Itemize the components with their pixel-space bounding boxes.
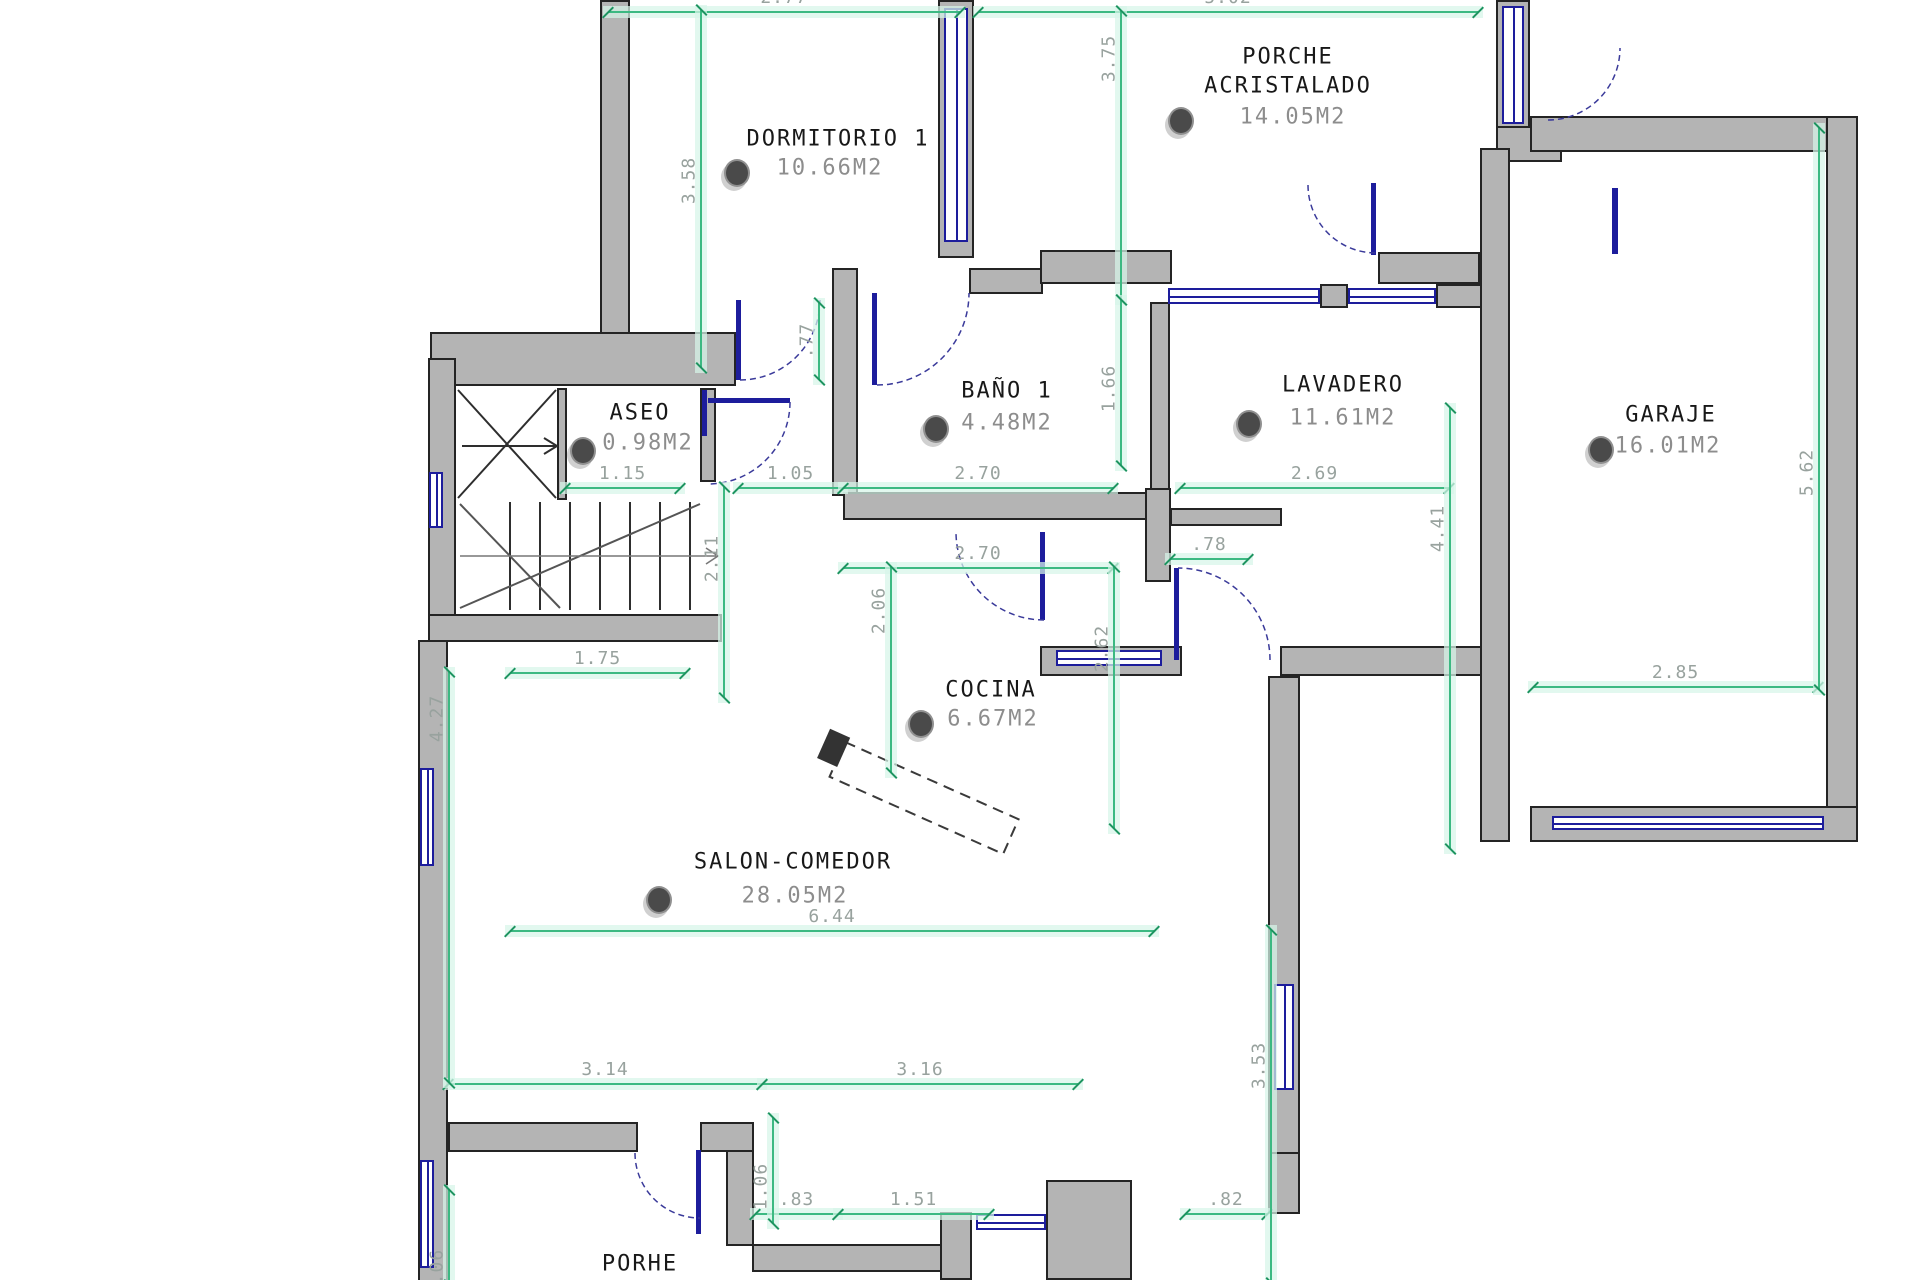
door-leaf [702,390,707,436]
wall-segment [940,1212,972,1280]
dimension-label: 3.58 [679,157,700,204]
wall-segment [600,0,630,334]
dimension-label: 1.75 [574,648,621,669]
light-point-marker [570,437,596,465]
room-label-porhe: PORHE [602,1252,678,1277]
wall-segment [1378,252,1480,284]
dimension-cocina-height-2: 2.62 [1113,567,1115,829]
dimension-label: 2.85 [1652,662,1699,683]
wall-segment [1530,116,1858,152]
dimension-pass-width: .78 [1170,558,1248,560]
dimension-salon-top-width: 1.75 [510,672,685,674]
dimension-label: 1.06 [427,1249,448,1280]
window [1552,816,1824,830]
dimension-hall-height: 2.11 [723,487,725,698]
dimension-label: .78 [1191,534,1227,555]
dimension-label: .77 [797,323,818,359]
window [1348,288,1436,304]
wall-segment [1826,116,1858,842]
door-leaf [708,398,790,403]
wall-segment [969,268,1043,294]
room-label-salon: SALON-COMEDOR [694,850,892,875]
dimension-label: 2.62 [1092,625,1113,672]
room-label-porche: PORCHE [1242,45,1333,70]
dimension-door-height: .77 [818,303,820,380]
dimension-label: 6.44 [808,906,855,927]
door-leaf [1612,188,1618,254]
room-area-porche: 14.05M2 [1240,105,1347,130]
dimension-porhe-width-3: .82 [1185,1213,1267,1215]
dimension-cocina-top-width: 2.70 [843,567,1113,569]
dimension-salon-width: 6.44 [510,930,1154,932]
dimension-label: 1.66 [1099,365,1120,412]
wall-segment [1268,1152,1300,1214]
wall-segment [430,332,736,386]
light-point-marker [1168,107,1194,135]
door-leaf [1174,568,1179,660]
dimension-dormitorio-height: 3.58 [700,10,702,368]
light-point-marker [1236,410,1262,438]
wall-segment [1040,250,1172,284]
dimension-label: 3.14 [581,1059,628,1080]
dimension-bano-width: 2.70 [843,487,1113,489]
dimension-aseo-width: 1.15 [565,487,680,489]
dimension-porhe-door-height: 1.06 [772,1118,774,1224]
window [420,768,434,866]
room-area-lavadero: 11.61M2 [1290,406,1397,431]
window [429,472,443,528]
door-leaf [1040,532,1045,620]
dimension-salon-right-height: 3.53 [1270,930,1272,1280]
wall-segment [1046,1180,1132,1280]
wall-segment [752,1244,944,1272]
floor-plan: 2.77 5.02 1.15 1.05 2.70 2.69 2.70 .78 2… [0,0,1920,1280]
wall-segment [1436,284,1482,308]
wall-segment [1480,148,1510,842]
dimension-salon-height: 4.27 [448,672,450,1083]
dimension-hall-width: 1.05 [738,487,843,489]
wall-segment [1320,284,1348,308]
dimension-label: .82 [1208,1189,1244,1210]
door-leaf [872,293,877,385]
wall-segment [1150,302,1170,490]
light-point-marker [923,415,949,443]
dimension-bottom-left-height: 1.06 [448,1190,450,1280]
dimension-bottom-width-1: 3.14 [448,1083,762,1085]
room-label-garaje: GARAJE [1625,403,1716,428]
room-area-aseo: 0.98M2 [602,431,693,456]
light-point-marker [724,159,750,187]
light-point-marker [646,886,672,914]
dimension-label: 2.77 [760,0,807,8]
dimension-label: 4.41 [1428,505,1449,552]
dimension-porche-height: 3.75 [1120,11,1122,300]
wall-segment [700,1122,754,1152]
room-label-dormitorio1: DORMITORIO 1 [747,127,930,152]
dimension-garaje-width: 2.85 [1533,686,1818,688]
dimension-label: 2.11 [702,535,723,582]
dimension-label: 2.06 [869,587,890,634]
dimension-label: 1.15 [599,463,646,484]
dimension-top-left: 2.77 [608,11,960,13]
wall-segment [557,388,567,500]
dimension-label: 3.53 [1249,1042,1270,1089]
wall-segment [1170,508,1282,526]
dimension-label: 5.02 [1204,0,1251,8]
window [1502,6,1524,124]
room-area-garaje: 16.01M2 [1615,434,1722,459]
light-point-marker [908,710,934,738]
room-label-aseo: ASEO [610,401,671,426]
room-area-cocina: 6.67M2 [947,707,1038,732]
dimension-label: 3.16 [896,1059,943,1080]
dimension-cocina-height: 2.06 [890,567,892,773]
room-area-bano1: 4.48M2 [961,411,1052,436]
wall-segment [843,492,1155,520]
door-leaf [1371,183,1376,255]
dimension-top-right: 5.02 [978,11,1478,13]
dimension-label: 1.06 [751,1163,772,1210]
dimension-label: 2.70 [954,463,1001,484]
room-area-salon: 28.05M2 [742,884,849,909]
dimension-label: 2.69 [1291,463,1338,484]
room-label-lavadero: LAVADERO [1282,373,1404,398]
door-leaf [696,1150,701,1234]
dimension-label: .83 [779,1189,815,1210]
dimension-label: 2.70 [954,543,1001,564]
wall-segment [1145,488,1171,582]
light-point-marker [1588,436,1614,464]
dimension-porhe-width-1: .83 [755,1213,838,1215]
dimension-pass-height: 1.66 [1120,300,1122,466]
wall-segment [832,268,858,496]
dimension-lavadero-height: 4.41 [1449,408,1451,849]
dimension-label: 3.75 [1099,35,1120,82]
door-leaf [736,300,741,380]
window [944,8,968,242]
dimension-label: 1.05 [767,463,814,484]
dimension-label: 5.62 [1797,449,1818,496]
dimension-label: 4.27 [427,695,448,742]
dimension-lavadero-width: 2.69 [1180,487,1449,489]
wall-segment [448,1122,638,1152]
window [1168,288,1320,304]
dimension-bottom-width-2: 3.16 [762,1083,1078,1085]
room-label-bano1: BAÑO 1 [961,379,1052,404]
room-label-cocina: COCINA [945,678,1036,703]
dimension-label: 1.51 [890,1189,937,1210]
room-area-dormitorio1: 10.66M2 [777,156,884,181]
window [1274,984,1294,1090]
wall-segment [1280,646,1482,676]
dimension-porhe-width-2: 1.51 [838,1213,989,1215]
room-label-porche-2: ACRISTALADO [1204,74,1372,99]
wall-segment [428,614,722,642]
dimension-garaje-height: 5.62 [1818,128,1820,690]
